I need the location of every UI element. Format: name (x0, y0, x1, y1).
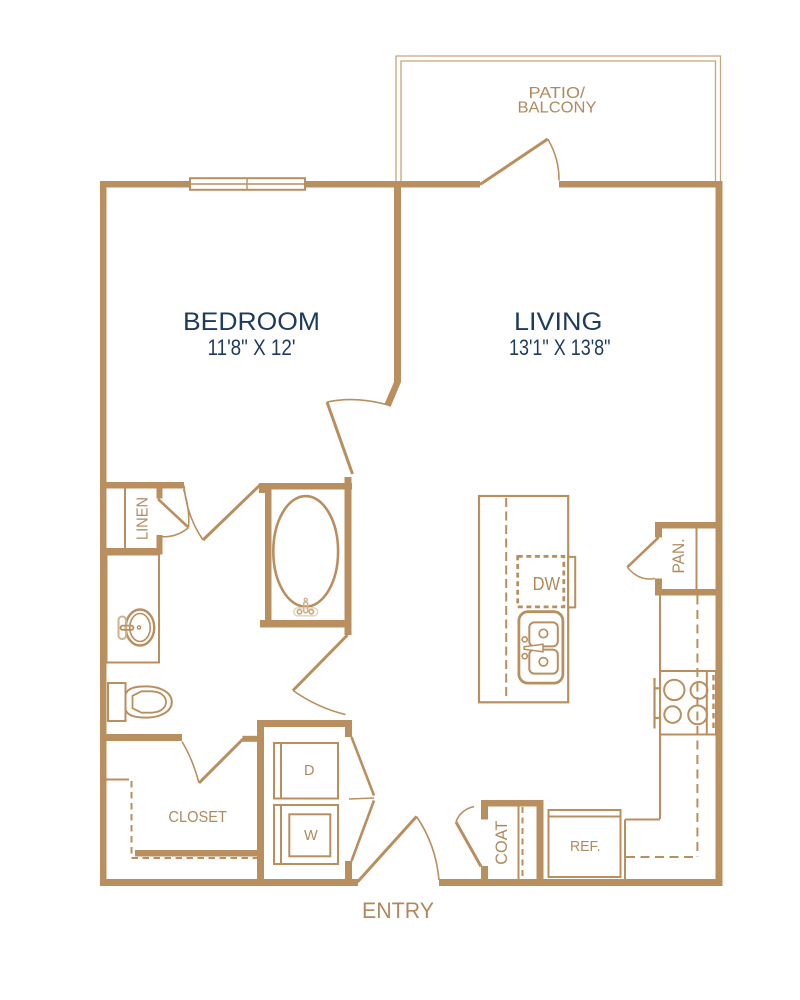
svg-text:BEDROOM: BEDROOM (183, 308, 320, 336)
svg-text:LIVING: LIVING (514, 308, 603, 336)
svg-text:11'8" X 12': 11'8" X 12' (208, 335, 296, 360)
svg-text:DW: DW (533, 574, 561, 594)
svg-text:PAN.: PAN. (669, 539, 688, 574)
svg-text:CLOSET: CLOSET (168, 809, 227, 826)
svg-text:REF.: REF. (570, 838, 601, 855)
svg-text:BALCONY: BALCONY (518, 99, 597, 116)
svg-text:13'1" X 13'8": 13'1" X 13'8" (509, 335, 611, 360)
svg-text:COAT: COAT (492, 821, 511, 865)
svg-text:D: D (304, 763, 314, 779)
svg-text:W: W (304, 828, 318, 844)
svg-text:LINEN: LINEN (135, 497, 152, 540)
svg-text:ENTRY: ENTRY (362, 898, 434, 923)
